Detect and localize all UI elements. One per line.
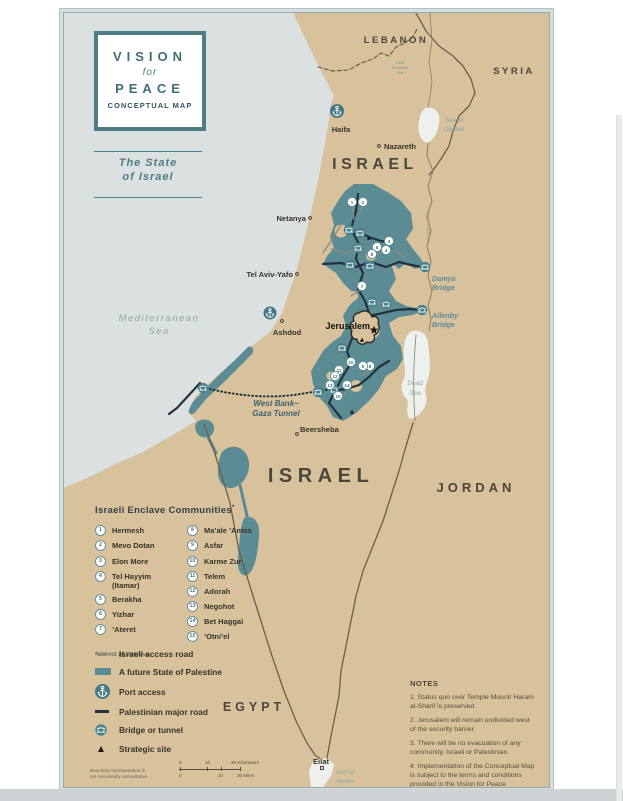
- enclave-number-badge: 5: [95, 594, 106, 605]
- scale-tick-label: 10: [205, 760, 210, 765]
- scale-bar: 0 10 20 Kilometers 0 10 20 Miles: [179, 760, 259, 782]
- country-label-israel-south: ISRAEL: [268, 465, 374, 487]
- enclave-name: Telem: [204, 571, 266, 581]
- enclave-legend: Israeli Enclave Communities* 1Hermesh 2M…: [95, 505, 280, 658]
- enclave-legend-title-text: Israeli Enclave Communities: [95, 505, 232, 516]
- access-road-swatch: [95, 653, 119, 655]
- bridge-tunnel-icon: [381, 299, 391, 309]
- tunnel-label: Gaza Tunnel: [252, 409, 300, 418]
- enclave-name: Adorah: [204, 586, 266, 596]
- tunnel-label: West Bank–: [253, 399, 299, 408]
- bridge-tunnel-icon: [313, 387, 323, 397]
- scale-tick-label: 10: [218, 773, 223, 778]
- scale-tick: [207, 767, 208, 771]
- bridge-tunnel-icon: [337, 343, 347, 353]
- allenby-bridge-label: Allenby: [431, 311, 459, 320]
- enclave-name: Hermesh: [112, 525, 174, 535]
- note-item: 1. Status quo over Temple Mount/ Haram a…: [410, 693, 536, 711]
- svg-text:13: 13: [327, 383, 333, 389]
- scrollbar[interactable]: [616, 115, 622, 801]
- legend-label: Bridge or tunnel: [119, 725, 183, 735]
- enclave-name: ’Otni’el: [204, 631, 266, 641]
- scale-tick-label: 20 Miles: [237, 773, 254, 778]
- enclave-legend-asterisk: *: [232, 505, 235, 511]
- list-item: 10Karme Zur: [187, 556, 279, 567]
- enclave-marker-4: 4: [381, 245, 390, 254]
- bridge-tunnel-icon: [198, 383, 208, 393]
- enclave-number-badge: 11: [187, 571, 198, 582]
- list-item: 3Elon More: [95, 556, 187, 567]
- page: LEBANON SYRIA ISRAEL ISRAEL JORDAN EGYPT…: [0, 0, 623, 801]
- country-label-israel-north: ISRAEL: [332, 156, 418, 173]
- enclave-number-badge: 10: [187, 556, 198, 567]
- note-item: 2. Jerusalem will remain undivided west …: [410, 716, 536, 734]
- subtitle-line-2: of Israel: [94, 170, 202, 184]
- enclave-number-badge: 1: [95, 525, 106, 536]
- enclave-marker-7: 7: [357, 281, 366, 290]
- subtitle-divider: [94, 197, 202, 198]
- bridge-tunnel-icon: [365, 261, 375, 271]
- enclave-name: Tel Hayyim (Itamar): [112, 571, 174, 590]
- enclave-number-badge: 4: [95, 571, 106, 582]
- scale-tick-label: 0: [179, 760, 182, 765]
- title-box: VISION for PEACE CONCEPTUAL MAP: [94, 31, 206, 131]
- svg-text:4: 4: [385, 248, 388, 254]
- list-item: 13Negohot: [187, 601, 279, 612]
- palestine-swatch: [95, 668, 119, 675]
- enclave-name: Yizhar: [112, 609, 174, 619]
- svg-text:12: 12: [332, 374, 338, 380]
- enclave-number-badge: 9: [187, 540, 198, 551]
- attribution: Boundary representation is not necessari…: [90, 768, 170, 780]
- allenby-bridge-label: Bridge: [432, 320, 455, 329]
- enclave-name: Mevo Dotan: [112, 540, 174, 550]
- note-item: 4. Implementation of the Conceptual Map …: [410, 762, 536, 789]
- water-label-mediterranean-sea: Sea: [148, 326, 169, 337]
- subtitle-line-1: The State: [94, 156, 202, 170]
- enclave-marker-6: 6: [367, 249, 376, 258]
- city-label-nazareth: Nazareth: [384, 142, 416, 151]
- water-label-jordan-river: Jordan River: [426, 208, 432, 242]
- enclave-legend-column-2: 8Ma’ale ’Amos 9Asfar 10Karme Zur 11Telem…: [187, 525, 279, 647]
- list-item: 2Mevo Dotan: [95, 540, 187, 551]
- enclave-number-badge: 15: [187, 631, 198, 642]
- bottom-window-edge: [0, 789, 623, 801]
- map-legend: Israeli access road A future State of Pa…: [95, 649, 255, 761]
- enclave-number-badge: 8: [187, 525, 198, 536]
- scale-tick: [240, 767, 241, 771]
- enclave-marker-9: 9: [358, 361, 367, 370]
- water-label-gulf-of-aqaba: Gulf of: [336, 769, 356, 776]
- list-item: 14Bet Haggai: [187, 616, 279, 627]
- title-vision: VISION: [98, 49, 202, 64]
- enclave-number-badge: 12: [187, 586, 198, 597]
- enclave-marker-12: 12: [330, 371, 339, 380]
- svg-text:6: 6: [371, 252, 374, 258]
- list-item: 12Adorah: [187, 586, 279, 597]
- scale-line: [179, 769, 241, 770]
- svg-text:9: 9: [362, 364, 365, 370]
- list-item: 4Tel Hayyim (Itamar): [95, 571, 187, 590]
- svg-text:8: 8: [369, 364, 372, 370]
- map-frame: LEBANON SYRIA ISRAEL ISRAEL JORDAN EGYPT…: [63, 12, 550, 788]
- enclave-name: Berakha: [112, 594, 174, 604]
- legend-row-palestine: A future State of Palestine: [95, 667, 255, 677]
- svg-text:15: 15: [335, 394, 341, 400]
- city-label-netanya: Netanya: [276, 214, 306, 223]
- enclave-marker-3: 3: [384, 236, 393, 245]
- legend-label: Port access: [119, 687, 166, 697]
- subtitle-state-of-israel: The State of Israel: [94, 156, 202, 185]
- haifa-port-anchor-icon: [330, 104, 344, 118]
- svg-text:5: 5: [376, 245, 379, 251]
- city-label-ashdod: Ashdod: [273, 328, 302, 337]
- svg-text:7: 7: [361, 284, 364, 290]
- water-label-mediterranean: Mediterranean: [119, 313, 200, 324]
- enclave-name: Elon More: [112, 556, 174, 566]
- legend-label: A future State of Palestine: [119, 667, 222, 677]
- enclave-number-badge: 7: [95, 624, 106, 635]
- water-label-galilee: Sea of: [445, 117, 465, 124]
- list-item: 8Ma’ale ’Amos: [187, 525, 279, 536]
- water-label-gulf-of-aqaba: Aqaba: [335, 778, 355, 785]
- enclave-legend-column-1: 1Hermesh 2Mevo Dotan 3Elon More 4Tel Hay…: [95, 525, 187, 647]
- list-item: 9Asfar: [187, 540, 279, 551]
- city-label-jerusalem: Jerusalem: [325, 321, 370, 331]
- ashdod-port-anchor-icon: [264, 307, 277, 320]
- svg-text:3: 3: [388, 239, 391, 245]
- city-label-beersheba: Beersheba: [300, 425, 340, 434]
- armistice-line-label: Line: [396, 70, 404, 75]
- bridge-tunnel-icon: [345, 260, 355, 270]
- country-label-syria: SYRIA: [493, 66, 535, 77]
- scale-tick: [180, 767, 181, 771]
- enclave-name: Negohot: [204, 601, 266, 611]
- port-anchor-icon: [95, 684, 119, 699]
- enclave-marker-15: 15: [333, 391, 342, 400]
- subtitle-divider: [94, 151, 202, 152]
- damya-bridge-icon: [420, 262, 430, 272]
- allenby-bridge-icon: [417, 305, 427, 315]
- bridge-tunnel-icon: [353, 243, 363, 253]
- enclave-number-badge: 13: [187, 601, 198, 612]
- list-item: 15’Otni’el: [187, 631, 279, 642]
- note-item: 3. There will be no evacuation of any co…: [410, 739, 536, 757]
- enclave-marker-10: 10: [346, 357, 355, 366]
- enclave-marker-13: 13: [325, 380, 334, 389]
- legend-row-port: Port access: [95, 684, 255, 699]
- bridge-tunnel-icon: [344, 225, 354, 235]
- scale-tick-label: 20 Kilometers: [231, 760, 259, 765]
- title-for: for: [98, 67, 202, 78]
- scale-tick: [221, 767, 222, 771]
- legend-row-strategic: Strategic site: [95, 744, 255, 754]
- country-label-jordan: JORDAN: [437, 480, 516, 495]
- title-conceptual-map: CONCEPTUAL MAP: [98, 101, 202, 110]
- legend-row-major-road: Palestinian major road: [95, 707, 255, 717]
- strategic-site-icon: [95, 746, 119, 752]
- country-label-lebanon: LEBANON: [364, 35, 428, 46]
- enclave-number-badge: 14: [187, 616, 198, 627]
- enclave-number-badge: 2: [95, 540, 106, 551]
- enclave-name: ’Ateret: [112, 624, 174, 634]
- svg-text:1: 1: [351, 200, 354, 206]
- damya-bridge-label: Damya: [432, 274, 456, 283]
- list-item: 7’Ateret: [95, 624, 187, 635]
- bridge-tunnel-icon: [95, 724, 119, 736]
- svg-text:10: 10: [348, 360, 354, 366]
- enclave-legend-title: Israeli Enclave Communities*: [95, 505, 280, 516]
- enclave-marker-14: 14: [342, 380, 351, 389]
- water-label-galilee: Galilee: [444, 126, 464, 133]
- legend-label: Palestinian major road: [119, 707, 208, 717]
- city-label-tel-aviv: Tel Aviv-Yafo: [246, 270, 293, 279]
- enclave-name: Asfar: [204, 540, 266, 550]
- notes-title: NOTES: [410, 679, 536, 688]
- major-road-swatch: [95, 710, 119, 713]
- city-label-eilat: Eilat: [313, 757, 330, 766]
- title-peace: PEACE: [98, 81, 202, 96]
- enclave-number-badge: 6: [95, 609, 106, 620]
- legend-row-bridge: Bridge or tunnel: [95, 724, 255, 736]
- list-item: 11Telem: [187, 571, 279, 582]
- legend-label: Israeli access road: [119, 649, 193, 659]
- legend-label: Strategic site: [119, 744, 171, 754]
- enclave-name: Bet Haggai: [204, 616, 266, 626]
- svg-text:14: 14: [344, 383, 350, 389]
- water-label-dead-sea: Dead: [407, 380, 423, 387]
- city-label-haifa: Haifa: [332, 125, 351, 134]
- attribution-line: not necessarily authoritative.: [90, 774, 170, 780]
- notes-panel: NOTES 1. Status quo over Temple Mount/ H…: [410, 679, 536, 794]
- damya-bridge-label: Bridge: [432, 283, 455, 292]
- legend-row-access-road: Israeli access road: [95, 649, 255, 659]
- enclave-number-badge: 3: [95, 556, 106, 567]
- water-label-dead-sea: Sea: [409, 390, 421, 397]
- svg-text:2: 2: [362, 200, 365, 206]
- list-item: 1Hermesh: [95, 525, 187, 536]
- enclave-marker-2: 2: [358, 197, 367, 206]
- enclave-name: Karme Zur: [204, 556, 266, 566]
- bridge-tunnel-icon: [367, 297, 377, 307]
- list-item: 5Berakha: [95, 594, 187, 605]
- list-item: 6Yizhar: [95, 609, 187, 620]
- scale-tick-label: 0: [179, 773, 182, 778]
- bridge-tunnel-icon: [355, 228, 365, 238]
- enclave-name: Ma’ale ’Amos: [204, 525, 266, 535]
- enclave-marker-1: 1: [347, 197, 356, 206]
